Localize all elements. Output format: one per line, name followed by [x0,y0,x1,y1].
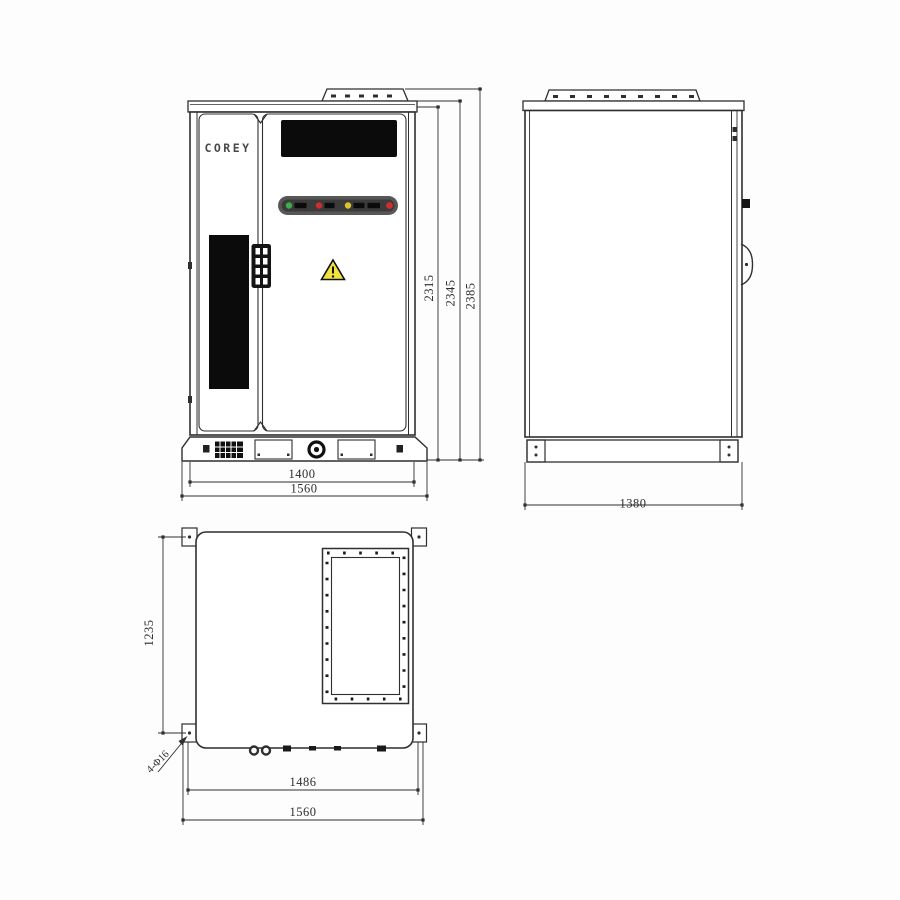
base-round-connector [309,442,324,457]
side-hinge-mark [733,127,738,132]
side-hinge-mark [733,136,738,141]
side-lock-block [742,199,750,208]
mounting-hole [188,535,191,538]
base-cutout-right [338,440,375,459]
brand-logo: COREY [204,141,251,155]
led-red-light [316,202,322,208]
led-red-light-end [386,202,393,209]
base-grille [215,442,243,459]
mounting-hole-callout: 4-Φ16 [145,736,188,776]
base-cutout-left [255,440,292,459]
dim-label-1235: 1235 [142,620,156,647]
side-top-cap [523,101,744,111]
front-base-plinth [182,437,427,461]
dim-label-1560-bottom: 1560 [290,805,317,819]
dim-label-2345: 2345 [444,280,458,307]
technical-drawing-page: COREY [0,0,900,900]
dim-label-1560-front: 1560 [291,482,318,496]
display-panel [281,120,397,157]
bottom-view: 1235 4-Φ16 1486 1560 [142,528,427,825]
dim-label-1380: 1380 [620,497,647,511]
dim-label-1400: 1400 [289,467,316,481]
cabinet-dimension-drawing: COREY [0,0,900,900]
mounting-hole [417,731,420,734]
mounting-hole [417,535,420,538]
side-cabinet-body [525,111,742,438]
led-label-bar [354,203,365,208]
side-top-rail [545,90,700,101]
dim-label-2385: 2385 [464,283,478,310]
vent-panel [209,235,249,389]
left-hinge-mark [188,262,192,269]
led-label-bar [295,203,307,208]
door-lock-mechanism [252,244,272,288]
side-base [527,440,738,462]
left-hinge-mark [188,396,192,403]
front-view: COREY [180,87,484,501]
base-bolt [203,445,210,453]
led-green-light [286,202,292,208]
led-label-bar [368,203,381,208]
dim-side-depth: 1380 [523,462,743,511]
mounting-hole [188,731,191,734]
side-view: 1380 [523,90,753,511]
dim-front-heights: 2315 2345 2385 [405,87,484,461]
front-top-cap [188,101,417,112]
bottom-base-plate [196,532,413,748]
led-indicator-strip [278,196,398,215]
dim-label-1486: 1486 [290,775,317,789]
dim-bottom-depth: 1235 [142,535,186,734]
front-top-rail [322,89,408,101]
base-bolt [397,445,404,453]
led-amber-light [345,202,351,208]
led-label-bar [325,203,335,208]
dim-label-2315: 2315 [422,275,436,302]
